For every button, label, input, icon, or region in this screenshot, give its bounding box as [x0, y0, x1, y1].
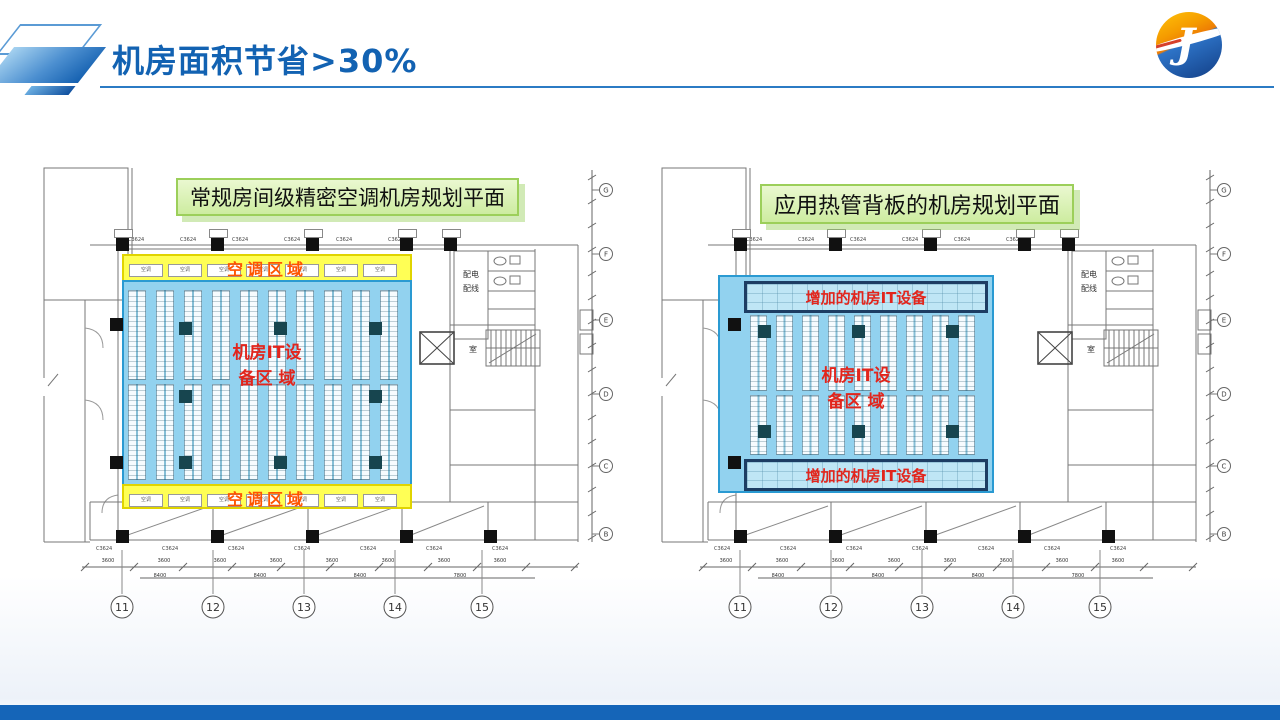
structural-column: [274, 322, 287, 335]
ac-zone-bottom: 空调区域 空调空调空调空调空调空调空调: [122, 484, 412, 509]
structural-column: [758, 425, 771, 438]
svg-text:C3624: C3624: [1110, 546, 1126, 552]
svg-text:3600: 3600: [326, 558, 339, 564]
building-column: [1102, 530, 1115, 543]
building-column: [1018, 238, 1031, 251]
svg-text:8400: 8400: [972, 573, 985, 579]
svg-text:C3624: C3624: [336, 237, 352, 243]
building-column: [734, 238, 747, 251]
svg-text:配线: 配线: [463, 283, 479, 293]
building-column: [110, 318, 123, 331]
added-it-box-bottom: 增加的机房IT设备: [744, 459, 988, 491]
svg-text:3600: 3600: [720, 558, 733, 564]
footer-bar: [0, 705, 1280, 720]
svg-text:3600: 3600: [1112, 558, 1125, 564]
page-title: 机房面积节省>30%: [112, 36, 417, 82]
svg-text:G: G: [1221, 187, 1226, 195]
svg-text:C: C: [604, 463, 609, 471]
svg-text:15: 15: [475, 601, 489, 614]
svg-text:C3624: C3624: [798, 237, 814, 243]
column-cap: [922, 229, 941, 238]
structural-column: [946, 325, 959, 338]
floor-plan-conventional: 1112131415GFEDCBC3624C3624C3624C3624C362…: [30, 150, 615, 632]
svg-text:C3624: C3624: [232, 237, 248, 243]
structural-column: [369, 322, 382, 335]
svg-text:11: 11: [115, 601, 129, 614]
svg-text:C3624: C3624: [846, 546, 862, 552]
building-column: [924, 238, 937, 251]
column-cap: [114, 229, 133, 238]
svg-text:13: 13: [297, 601, 311, 614]
title-underline: [100, 86, 1274, 88]
svg-text:C3624: C3624: [426, 546, 442, 552]
svg-text:配电: 配电: [463, 269, 479, 279]
svg-text:G: G: [603, 187, 608, 195]
structural-column: [274, 456, 287, 469]
svg-text:C3624: C3624: [978, 546, 994, 552]
structural-column: [369, 456, 382, 469]
decorative-parallelogram-fill: [0, 47, 106, 83]
svg-text:3600: 3600: [776, 558, 789, 564]
structural-column: [758, 325, 771, 338]
column-cap: [732, 229, 751, 238]
svg-text:8400: 8400: [254, 573, 267, 579]
server-rack-row: [324, 384, 342, 480]
logo-letter: J: [1176, 20, 1195, 67]
svg-text:C3624: C3624: [180, 237, 196, 243]
svg-text:C3624: C3624: [96, 546, 112, 552]
svg-text:3600: 3600: [438, 558, 451, 564]
building-column: [734, 530, 747, 543]
svg-text:8400: 8400: [354, 573, 367, 579]
svg-text:7800: 7800: [1072, 573, 1085, 579]
svg-text:7800: 7800: [454, 573, 467, 579]
building-column: [400, 530, 413, 543]
svg-text:B: B: [604, 531, 609, 539]
svg-text:C3624: C3624: [228, 546, 244, 552]
svg-text:C3624: C3624: [954, 237, 970, 243]
building-column: [444, 238, 457, 251]
svg-text:3600: 3600: [158, 558, 171, 564]
svg-text:3600: 3600: [494, 558, 507, 564]
svg-text:8400: 8400: [154, 573, 167, 579]
it-equipment-zone: 增加的机房IT设备 机房IT设 备区 域 增加的机房IT设备: [718, 275, 994, 493]
svg-text:13: 13: [915, 601, 929, 614]
server-rack-row: [380, 384, 398, 480]
svg-text:室: 室: [469, 344, 477, 354]
svg-text:3600: 3600: [102, 558, 115, 564]
svg-text:C3624: C3624: [294, 546, 310, 552]
building-column: [400, 238, 413, 251]
building-column: [110, 456, 123, 469]
column-cap: [1060, 229, 1079, 238]
svg-text:B: B: [1222, 531, 1227, 539]
server-rack-row: [212, 384, 230, 480]
svg-text:C3624: C3624: [850, 237, 866, 243]
svg-text:3600: 3600: [270, 558, 283, 564]
building-column: [1018, 530, 1031, 543]
building-column: [829, 238, 842, 251]
svg-text:3600: 3600: [888, 558, 901, 564]
structural-column: [179, 322, 192, 335]
svg-text:3600: 3600: [832, 558, 845, 564]
structural-column: [179, 456, 192, 469]
svg-text:配电: 配电: [1081, 269, 1097, 279]
svg-text:3600: 3600: [1056, 558, 1069, 564]
svg-text:C3624: C3624: [492, 546, 508, 552]
svg-text:C3624: C3624: [902, 237, 918, 243]
column-cap: [1016, 229, 1035, 238]
svg-text:C3624: C3624: [284, 237, 300, 243]
svg-text:14: 14: [1006, 601, 1020, 614]
company-logo-icon: J: [1156, 12, 1222, 78]
server-rack-row: [128, 384, 146, 480]
svg-text:C3624: C3624: [714, 546, 730, 552]
it-zone-label: 机房IT设 备区 域: [720, 363, 992, 415]
ac-zone-label: 空调区域: [124, 256, 410, 280]
presentation-slide: 机房面积节省>30% J 1112131415GFEDCBC3624C3624C…: [0, 0, 1280, 720]
column-cap: [398, 229, 417, 238]
building-column: [211, 238, 224, 251]
building-column: [829, 530, 842, 543]
building-column: [484, 530, 497, 543]
building-column: [116, 530, 129, 543]
svg-text:D: D: [1221, 391, 1226, 399]
ac-zone-label: 空调区域: [124, 486, 410, 510]
svg-text:12: 12: [206, 601, 220, 614]
building-column: [306, 238, 319, 251]
structural-column: [852, 425, 865, 438]
structural-column: [946, 425, 959, 438]
svg-text:E: E: [1222, 317, 1226, 325]
svg-text:8400: 8400: [772, 573, 785, 579]
server-rack-row: [296, 384, 314, 480]
it-equipment-zone: 机房IT设 备区 域: [122, 280, 412, 486]
svg-text:C: C: [1222, 463, 1227, 471]
building-column: [1062, 238, 1075, 251]
server-rack-row: [352, 384, 370, 480]
ac-zone-top: 空调区域 空调空调空调空调空调空调空调: [122, 254, 412, 282]
it-zone-label: 机房IT设 备区 域: [124, 340, 410, 392]
column-cap: [827, 229, 846, 238]
diagram-caption: 常规房间级精密空调机房规划平面: [176, 178, 519, 216]
svg-text:3600: 3600: [214, 558, 227, 564]
column-cap: [304, 229, 323, 238]
svg-text:F: F: [604, 251, 608, 259]
svg-text:8400: 8400: [872, 573, 885, 579]
building-column: [728, 456, 741, 469]
building-column: [728, 318, 741, 331]
column-cap: [209, 229, 228, 238]
building-column: [211, 530, 224, 543]
svg-text:3600: 3600: [1000, 558, 1013, 564]
svg-text:3600: 3600: [944, 558, 957, 564]
diagram-caption: 应用热管背板的机房规划平面: [760, 184, 1074, 224]
svg-text:E: E: [604, 317, 608, 325]
column-cap: [442, 229, 461, 238]
svg-text:F: F: [1222, 251, 1226, 259]
svg-text:配线: 配线: [1081, 283, 1097, 293]
svg-text:C3624: C3624: [780, 546, 796, 552]
svg-text:C3624: C3624: [912, 546, 928, 552]
svg-text:3600: 3600: [382, 558, 395, 564]
rack-band: [128, 384, 406, 478]
decorative-parallelogram-small: [24, 86, 75, 95]
svg-text:12: 12: [824, 601, 838, 614]
floor-plan-heat-pipe: 1112131415GFEDCBC3624C3624C3624C3624C362…: [648, 150, 1233, 632]
svg-text:15: 15: [1093, 601, 1107, 614]
structural-column: [852, 325, 865, 338]
svg-text:C3624: C3624: [360, 546, 376, 552]
svg-text:11: 11: [733, 601, 747, 614]
building-column: [924, 530, 937, 543]
added-it-box-top: 增加的机房IT设备: [744, 281, 988, 313]
svg-text:14: 14: [388, 601, 402, 614]
server-rack-row: [240, 384, 258, 480]
svg-text:D: D: [603, 391, 608, 399]
building-column: [306, 530, 319, 543]
svg-text:室: 室: [1087, 344, 1095, 354]
svg-text:C3624: C3624: [1044, 546, 1060, 552]
building-column: [116, 238, 129, 251]
svg-text:C3624: C3624: [162, 546, 178, 552]
server-rack-row: [156, 384, 174, 480]
